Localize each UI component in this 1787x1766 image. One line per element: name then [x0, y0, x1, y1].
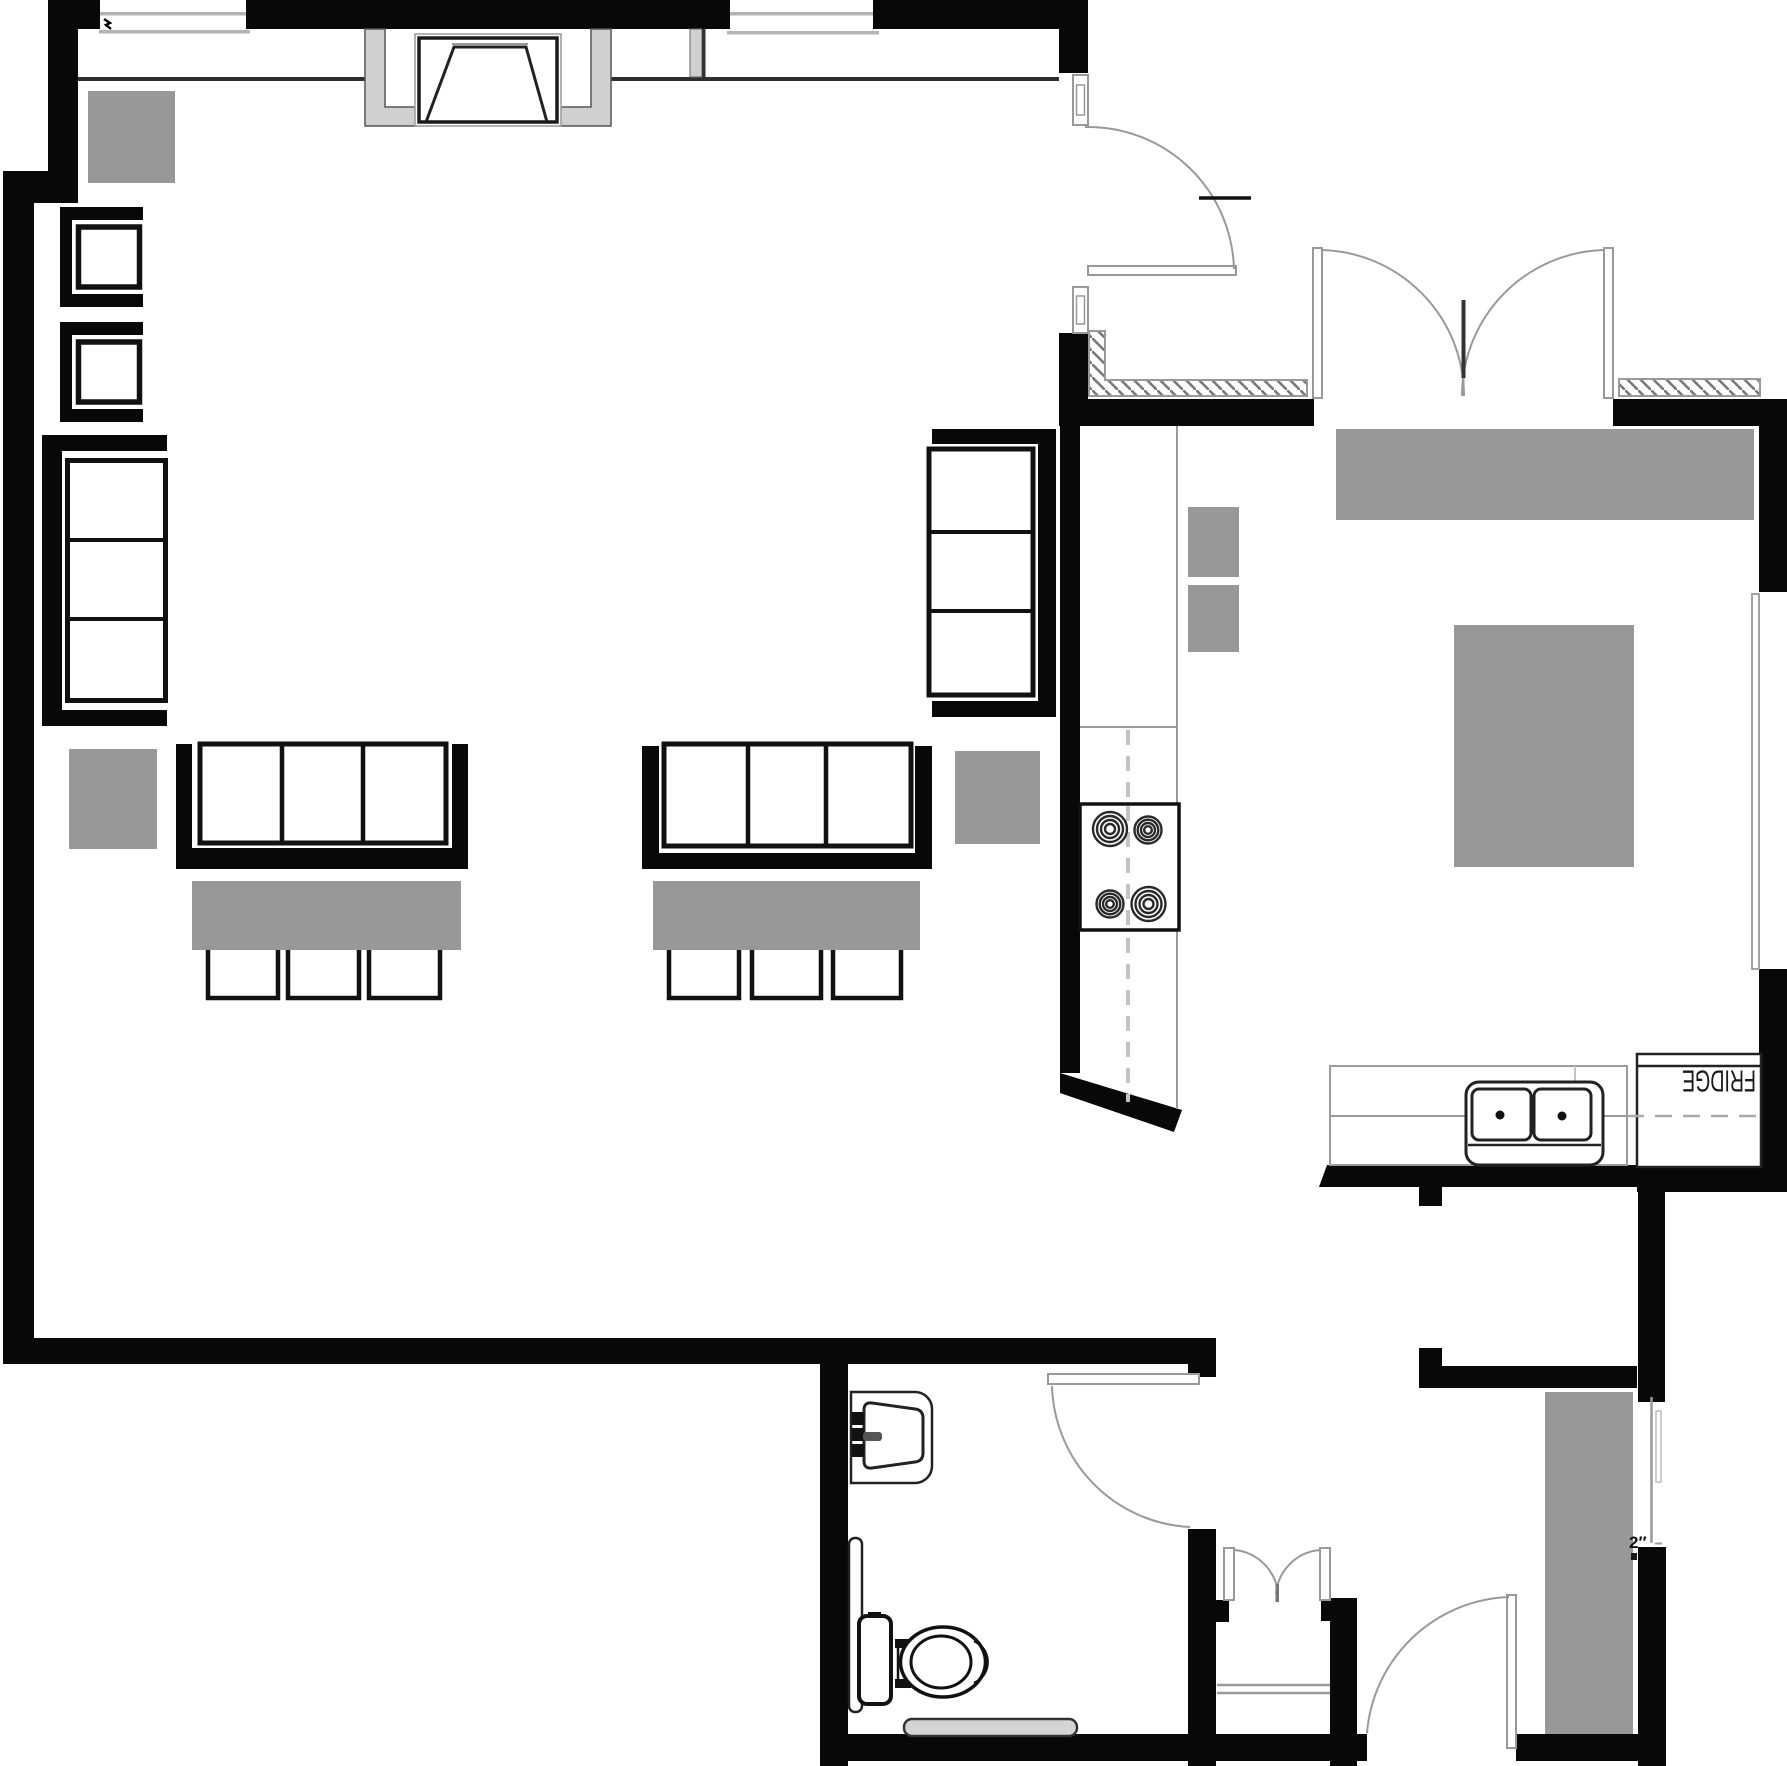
- svg-text:FRIDGE: FRIDGE: [1682, 1064, 1756, 1099]
- svg-text:2″: 2″: [1629, 1533, 1647, 1552]
